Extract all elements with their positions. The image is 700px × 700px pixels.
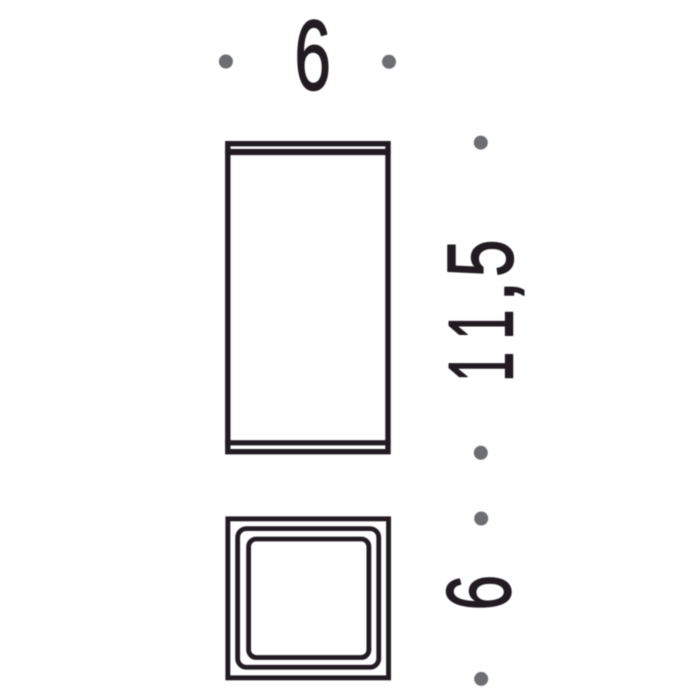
svg-text:1: 1 xyxy=(430,352,534,382)
svg-text:6: 6 xyxy=(428,575,530,611)
svg-text:,: , xyxy=(442,280,531,302)
svg-text:5: 5 xyxy=(429,239,533,277)
svg-text:6: 6 xyxy=(294,0,331,111)
svg-text:1: 1 xyxy=(430,310,534,340)
